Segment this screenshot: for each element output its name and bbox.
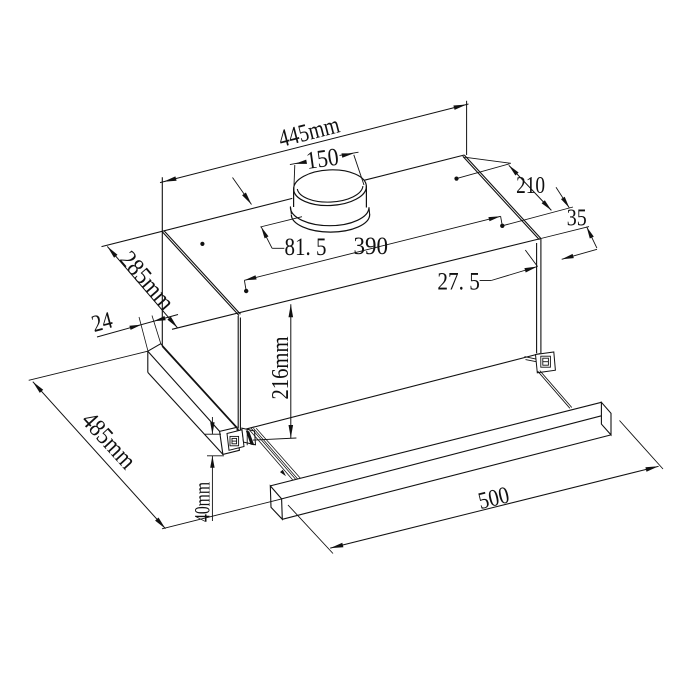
svg-text:35: 35 (567, 206, 587, 232)
svg-text:216mm: 216mm (268, 336, 294, 399)
svg-text:81. 5: 81. 5 (285, 234, 327, 261)
svg-text:150: 150 (304, 144, 340, 175)
svg-text:40mm: 40mm (190, 482, 215, 522)
svg-text:390: 390 (353, 233, 388, 260)
svg-text:27. 5: 27. 5 (437, 268, 480, 295)
svg-text:210: 210 (516, 173, 545, 199)
